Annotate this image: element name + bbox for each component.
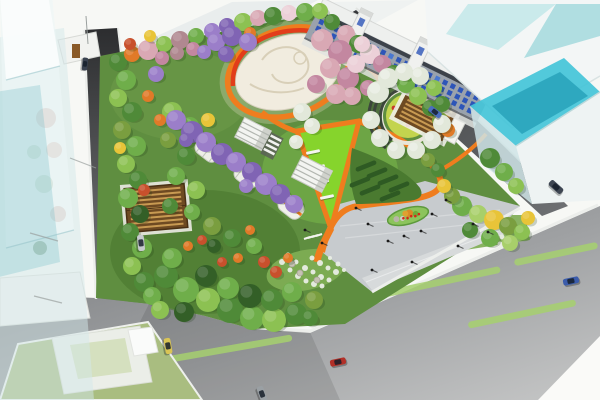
white-flower-shrub [310,256,315,261]
white-flower-shrub [304,279,309,284]
white-flower-shrub [342,268,346,272]
white-flower-shrub [302,265,308,271]
white-flower-shrub [288,268,293,273]
scene-svg [0,0,600,400]
park-rendering-stage [0,0,600,400]
garden-rock [297,270,303,276]
garden-rock [314,277,320,283]
white-flower-shrub [326,266,331,271]
white-flower-shrub [333,269,339,275]
southwest-building-annex [128,327,158,356]
white-flower-shrub [336,262,341,267]
white-flower-shrub [328,256,332,260]
car [135,235,145,253]
white-flower-shrub [320,284,325,289]
white-flower-shrub [327,278,332,283]
white-flower-shrub [311,270,316,275]
white-flower-shrub [317,260,323,266]
